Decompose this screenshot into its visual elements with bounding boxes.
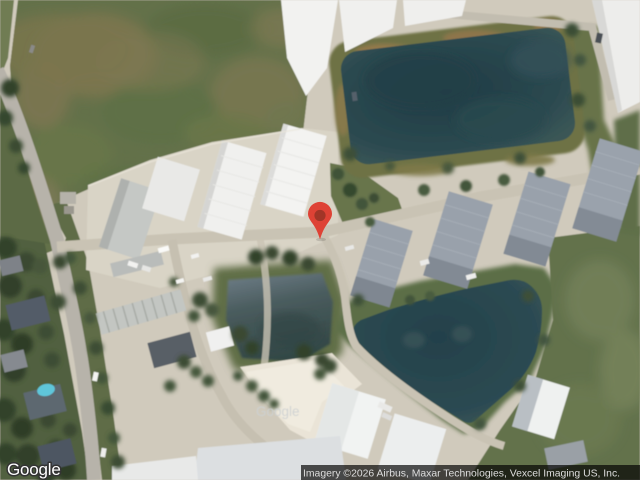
svg-text:Imagery ©2026 Airbus, Maxar Te: Imagery ©2026 Airbus, Maxar Technologies… — [303, 469, 620, 480]
svg-text:Google: Google — [256, 404, 300, 419]
svg-text:Google: Google — [7, 460, 61, 479]
